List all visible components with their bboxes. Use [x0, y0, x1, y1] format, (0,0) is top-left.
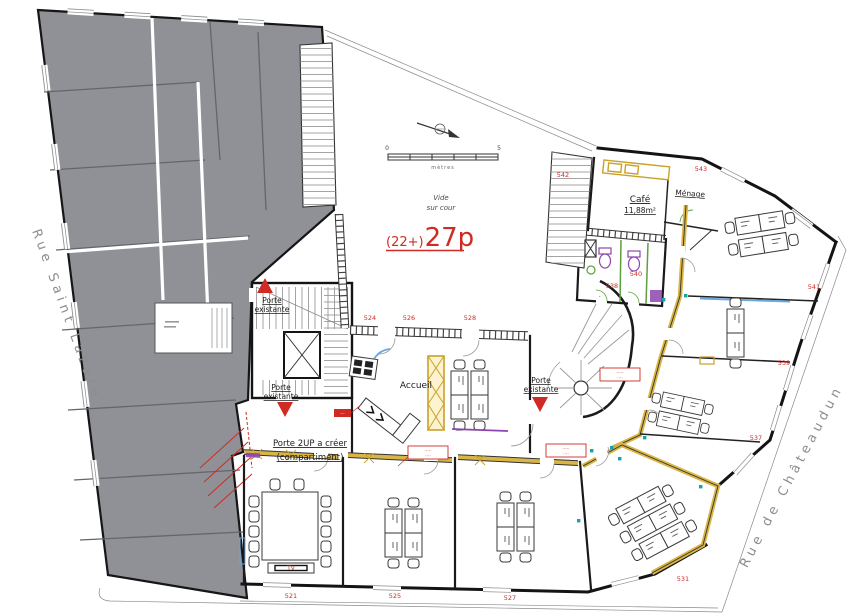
- porte-existante-1-line2: existante: [255, 305, 290, 314]
- tag-box1-line1: ·····: [616, 371, 623, 376]
- column-duct: [428, 356, 444, 430]
- floor-plan-drawing: 0 5 mètres Vide sur cour (22+)27p Porte …: [0, 0, 850, 615]
- door-triangle-2: [277, 402, 293, 417]
- porte-existante-2-line1: Porte: [271, 383, 291, 392]
- room-number-521: 521: [285, 592, 297, 600]
- porte-existante-1-line1: Porte: [262, 296, 282, 305]
- note-2up-line1: Porte 2UP a créer: [273, 438, 348, 449]
- label-cafe-area: 11,88m²: [624, 206, 656, 215]
- desk-cluster-525: [385, 498, 422, 568]
- capacity-annotation: (22+)27p: [386, 223, 474, 253]
- north-arrow-icon: [417, 123, 460, 138]
- capacity-prefix: (22+): [386, 235, 424, 250]
- desk-cluster-528: [451, 360, 488, 430]
- tag-solid: ···: [340, 412, 344, 417]
- room-number-538: 538: [606, 282, 618, 290]
- room-number-540: 540: [630, 270, 642, 278]
- door-triangle-3: [532, 397, 548, 412]
- note-2up-line2: (compartiment): [277, 453, 344, 463]
- room-number-541: 541: [808, 283, 820, 291]
- room-number-543: 543: [695, 165, 707, 173]
- scale-bar: 0 5 mètres: [385, 145, 501, 171]
- courtyard: 0 5 mètres Vide sur cour (22+)27p: [385, 123, 501, 253]
- label-menage: Ménage: [675, 188, 706, 199]
- tag-box2-line2: ····: [563, 453, 569, 458]
- label-accueil: Accueil: [400, 381, 432, 391]
- tag-box3-line2: ····: [425, 455, 431, 460]
- desk-cluster-527: [497, 492, 534, 562]
- wc-block: [577, 228, 666, 307]
- bottom-rooms: [240, 445, 718, 594]
- porte-existante-3-line2: existante: [524, 385, 559, 394]
- gray-wing-staircase: [300, 43, 336, 207]
- reception-desk: [358, 386, 420, 443]
- room-number-537: 537: [750, 434, 762, 442]
- label-tv: TV: [286, 565, 296, 572]
- room-number-542: 542: [557, 171, 569, 179]
- tag-box3-line1: ·····: [424, 449, 431, 454]
- svg-text:(22+)27p: (22+)27p: [386, 223, 474, 253]
- scale-start: 0: [385, 145, 389, 152]
- label-cafe: Café: [630, 194, 651, 205]
- porte-existante-3-line1: Porte: [531, 376, 551, 385]
- desk-cluster-539: [727, 298, 744, 368]
- gray-wing-landing: [155, 303, 232, 353]
- boundary-lines: [325, 30, 596, 151]
- toilet-icon: [599, 248, 640, 271]
- room-number-527: 527: [504, 594, 516, 602]
- small-elevator: [585, 240, 596, 257]
- room-number-528: 528: [464, 314, 476, 322]
- meeting-table-521: [249, 479, 331, 573]
- cafe-counter: [603, 160, 670, 180]
- room-number-526: 526: [403, 314, 415, 322]
- room-number-524: 524: [364, 314, 376, 322]
- tag-box2-line1: ·····: [562, 447, 569, 452]
- room-number-525: 525: [389, 592, 401, 600]
- porte-existante-2-line2: existante: [264, 392, 299, 401]
- room-number-539: 539: [778, 359, 790, 367]
- wc-cabinet: [650, 290, 662, 302]
- floor-plan-page: 0 5 mètres Vide sur cour (22+)27p Porte …: [0, 0, 850, 615]
- scale-unit: mètres: [431, 164, 455, 171]
- desk-cluster-541: [724, 209, 799, 258]
- courtyard-label-line2: sur cour: [427, 204, 457, 212]
- reception-side-table: [349, 356, 378, 379]
- courtyard-label-line1: Vide: [433, 194, 448, 202]
- scale-end: 5: [497, 145, 501, 152]
- street-label-right: Rue de Châteaudun: [737, 382, 846, 570]
- tag-box1-line2: ····: [617, 377, 623, 382]
- desk-cluster-537: [647, 390, 714, 436]
- room-number-531: 531: [677, 575, 689, 583]
- capacity-main: 27p: [425, 223, 475, 253]
